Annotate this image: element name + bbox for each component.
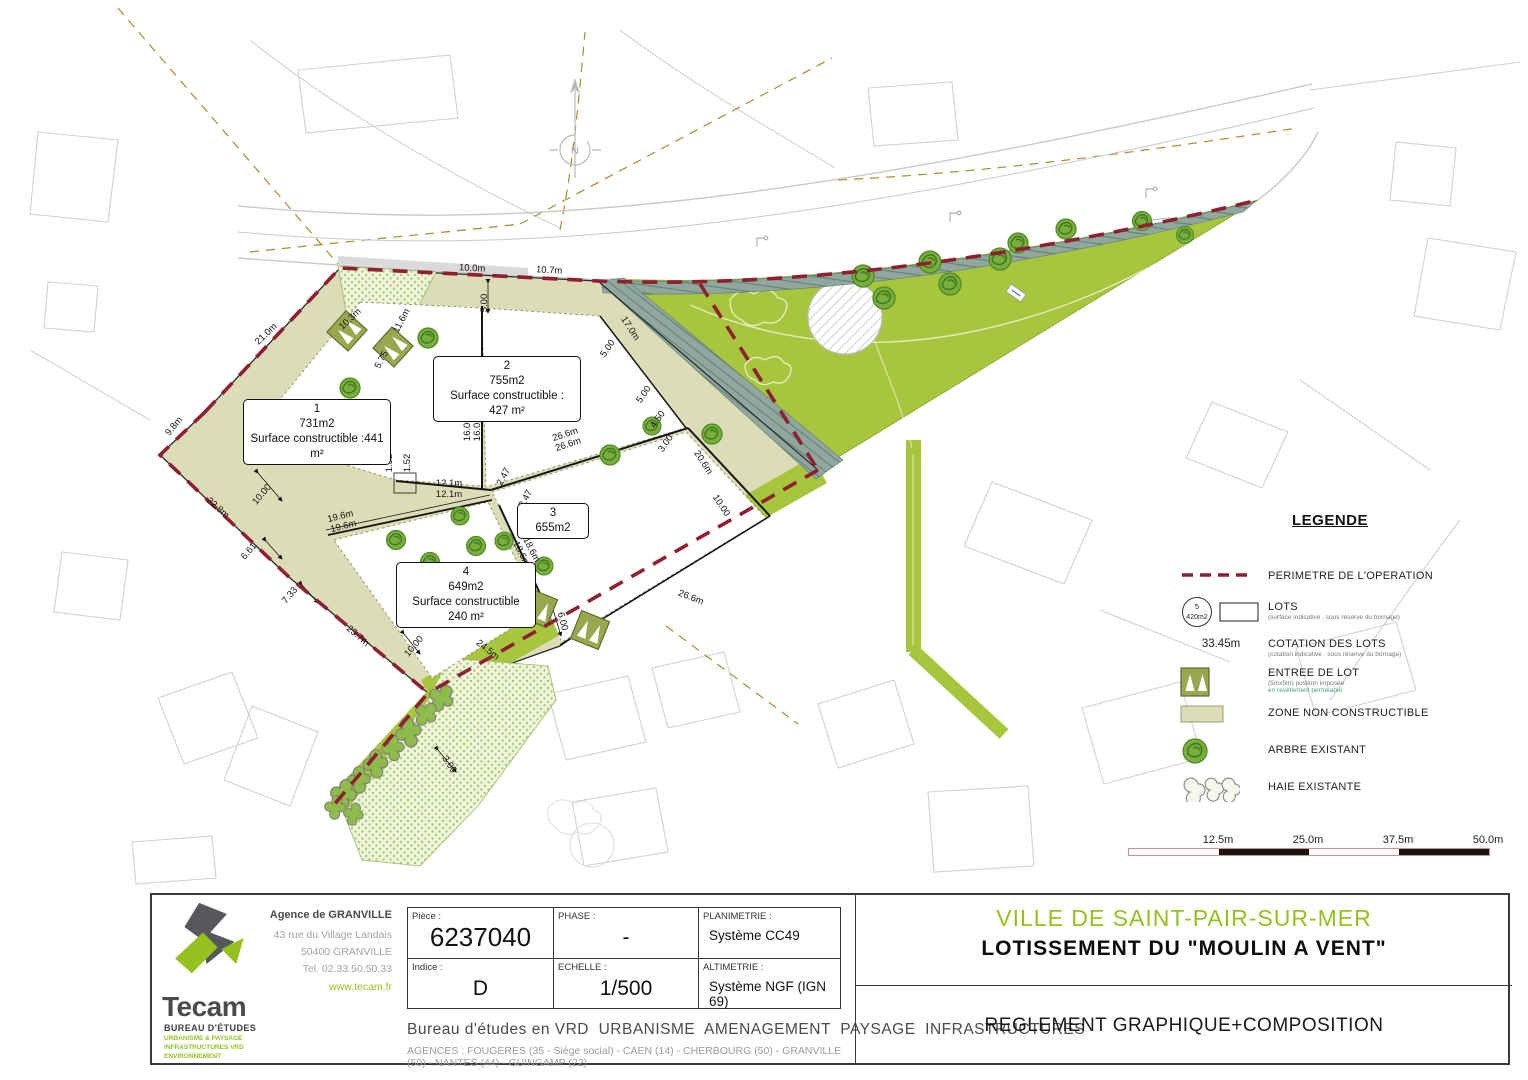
hatched-circle	[808, 280, 882, 354]
svg-text:5: 5	[1195, 602, 1199, 611]
document-title: REGLEMENT GRAPHIQUE+COMPOSITION	[856, 1015, 1512, 1037]
cotation-icon: 33.45m	[1202, 638, 1240, 650]
lot-4-label: 4 649m2 Surface constructible 240 m²	[396, 562, 536, 628]
legend-item-lots: 5 420m2 LOTS (surface indicative , sous …	[1180, 595, 1480, 621]
legend-item-zone: ZONE NON CONSTRUCTIBLE	[1180, 705, 1480, 719]
lot-number: 2	[439, 359, 575, 374]
agency-block: Agence de GRANVILLE 43 rue du Village La…	[264, 909, 392, 993]
agency-address1: 43 rue du Village Landais	[264, 929, 392, 941]
legend-item-tree: ARBRE EXISTANT	[1180, 736, 1480, 756]
lot-area: 655m2	[523, 521, 583, 536]
tecam-subtitle: BUREAU D'ÉTUDES	[164, 1023, 256, 1033]
existing-tree-icon	[418, 328, 438, 348]
dimension-label: 1.52	[402, 454, 413, 473]
existing-tree-icon	[1056, 219, 1076, 239]
lot-area: 755m2	[439, 374, 575, 389]
agency-address2: 50400 GRANVILLE	[264, 946, 392, 958]
legend-item-hedge: HAIE EXISTANTE	[1180, 776, 1480, 793]
existing-tree-icon	[340, 378, 360, 398]
dimension-label: 7.33	[280, 585, 300, 606]
scale-bar: 12.5m 25.0m 37.5m 50.0m	[1128, 834, 1494, 858]
legend: LEGENDE PERIMETRE DE L'OPERATION 5 420m2…	[1180, 512, 1480, 533]
lot-2-label: 2 755m2 Surface constructible : 427 m²	[433, 356, 581, 422]
legend-item-entry: ENTREE DE LOT (5mx5m) position imposée e…	[1180, 667, 1480, 694]
tecam-logo-icon	[166, 901, 262, 989]
agency-title: Agence de GRANVILLE	[264, 909, 392, 921]
city-title: VILLE DE SAINT-PAIR-SUR-MER	[856, 905, 1512, 932]
lot-number: 1	[249, 402, 385, 417]
lot-area: 731m2	[249, 417, 385, 432]
legend-item-cotation: 33.45m COTATION DES LOTS (cotation indic…	[1180, 638, 1480, 658]
indice-value: D	[408, 977, 553, 1001]
existing-tree-icon	[1177, 227, 1194, 244]
svg-text:420m2: 420m2	[1186, 614, 1208, 621]
lot-3-label: 3 655m2	[517, 503, 589, 539]
agency-website-link[interactable]: www.tecam.fr	[264, 981, 392, 993]
tecam-tags: URBANISME & PAYSAGE INFRASTRUCTURES VRD …	[164, 1035, 244, 1061]
lot-area: 649m2	[402, 580, 530, 595]
legend-item-perimeter: PERIMETRE DE L'OPERATION	[1180, 570, 1480, 582]
phase-value: -	[554, 926, 698, 950]
agency-phone: Tel. 02.33.50.50.33	[264, 963, 392, 975]
echelle-value: 1/500	[554, 977, 698, 1001]
scale-label: 37.5m	[1368, 834, 1428, 846]
lot-number: 4	[402, 565, 530, 580]
agences-line: AGENCES : FOUGERES (35 - Siège social) -…	[407, 1045, 855, 1069]
title-block: Tecam BUREAU D'ÉTUDES URBANISME & PAYSAG…	[150, 893, 1510, 1065]
scale-label: 50.0m	[1458, 834, 1518, 846]
project-title: LOTISSEMENT DU "MOULIN A VENT"	[856, 937, 1512, 961]
altimetrie-cell: ALTIMETRIE : Système NGF (IGN 69)	[699, 959, 840, 1008]
echelle-cell: ECHELLE : 1/500	[554, 959, 699, 1008]
lot-1-label: 1 731m2 Surface constructible :441 m²	[243, 399, 391, 465]
existing-tree-icon	[451, 507, 469, 525]
existing-tree-icon	[873, 287, 895, 309]
lot-surface: Surface constructible : 427 m²	[439, 389, 575, 419]
dimension-label: 12.1m	[436, 478, 462, 489]
existing-tree-icon	[702, 424, 722, 444]
green-path-diagonal	[913, 650, 1004, 734]
title-block-right: VILLE DE SAINT-PAIR-SUR-MER LOTISSEMENT …	[855, 895, 1512, 1063]
tecam-wordmark: Tecam	[162, 991, 246, 1023]
north-label: N	[571, 145, 579, 157]
dimension-label: 10.0m	[459, 262, 486, 274]
existing-tree-icon	[495, 532, 513, 550]
title-divider	[856, 985, 1512, 986]
piece-cell: Pièce : 6237040	[408, 908, 554, 959]
dimension-label: 10.7m	[536, 264, 563, 276]
piece-number: 6237040	[408, 922, 553, 953]
scale-bar-segments	[1128, 848, 1490, 856]
title-block-left: Tecam BUREAU D'ÉTUDES URBANISME & PAYSAG…	[152, 895, 855, 1063]
existing-tree-icon	[467, 537, 486, 556]
scale-label: 12.5m	[1188, 834, 1248, 846]
planimetrie-value: Système CC49	[709, 928, 840, 943]
legend-title: LEGENDE	[1180, 512, 1480, 529]
existing-tree-icon	[939, 273, 961, 295]
existing-tree-icon	[387, 531, 406, 550]
existing-tree-icon	[600, 445, 620, 465]
altimetrie-value: Système NGF (IGN 69)	[709, 979, 840, 1009]
dimension-label: 5.00	[479, 294, 490, 313]
indice-cell: Indice : D	[408, 959, 554, 1008]
lot-surface: Surface constructible 240 m²	[402, 595, 530, 625]
lot-number: 3	[523, 506, 583, 521]
drawing-info-table: Pièce : 6237040 PHASE : - PLANIMETRIE : …	[407, 907, 841, 1009]
dimension-label: 26.6m	[677, 588, 706, 608]
plan-sheet: N	[0, 0, 1528, 1080]
planimetrie-cell: PLANIMETRIE : Système CC49	[699, 908, 840, 959]
dimension-label: 12.1m	[436, 489, 462, 500]
scale-label: 25.0m	[1278, 834, 1338, 846]
phase-cell: PHASE : -	[554, 908, 699, 959]
lot-surface: Surface constructible :441 m²	[249, 432, 385, 462]
north-arrow-icon: N	[549, 78, 601, 178]
